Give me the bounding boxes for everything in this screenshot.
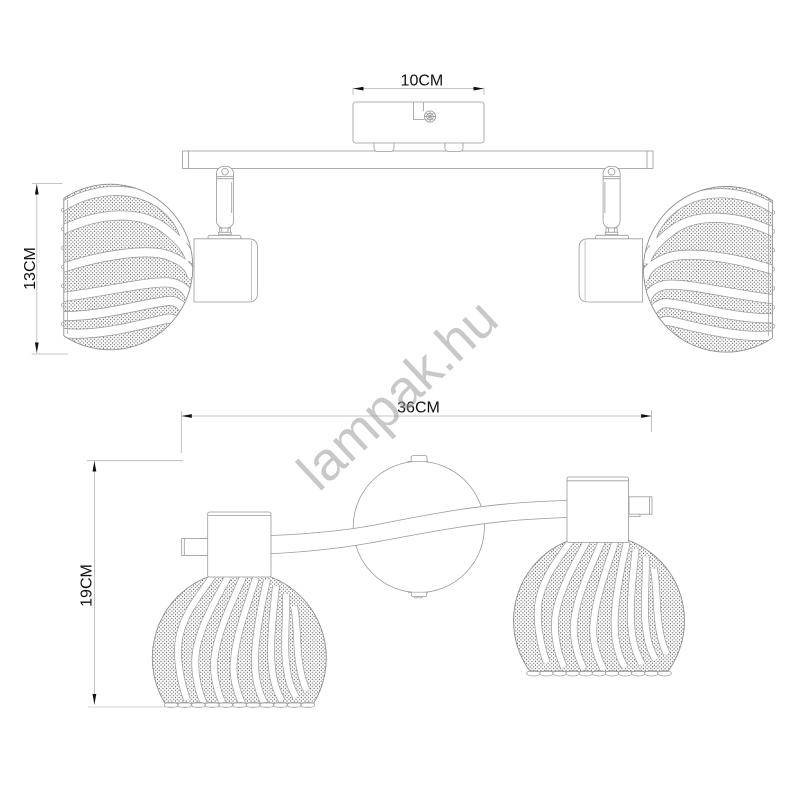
svg-text:19CM: 19CM xyxy=(78,564,95,607)
svg-text:13CM: 13CM xyxy=(22,247,39,290)
svg-text:10CM: 10CM xyxy=(401,72,444,89)
